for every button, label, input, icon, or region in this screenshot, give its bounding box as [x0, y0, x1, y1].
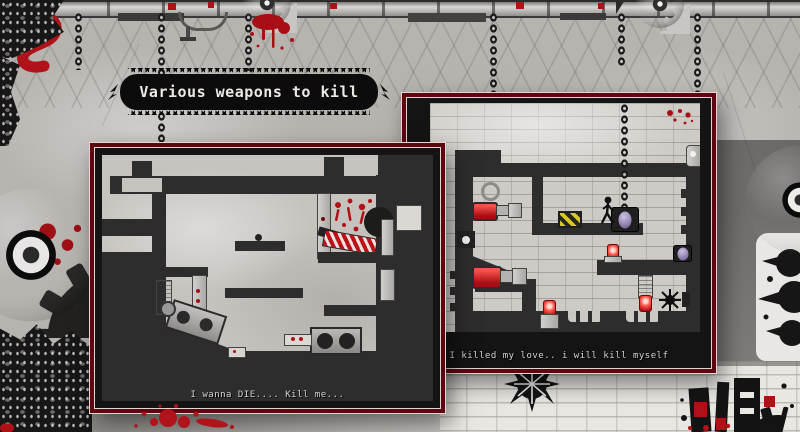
wall-tooth — [681, 225, 686, 234]
roller — [317, 333, 333, 349]
floor-notches — [568, 311, 602, 322]
syringe-head — [508, 203, 522, 218]
grunge-column — [0, 322, 92, 432]
banner: Various weapons to kill — [120, 68, 378, 116]
syringe-icon — [472, 202, 498, 221]
red-dot — [233, 350, 236, 353]
trigger-device — [284, 334, 312, 346]
rail-foot — [180, 37, 196, 41]
trigger-device — [228, 347, 246, 358]
shield-icon — [677, 247, 688, 260]
wall — [318, 252, 382, 263]
banner-spark-left-icon — [108, 84, 120, 100]
blood-splatter-icon — [238, 12, 308, 60]
roller — [198, 317, 214, 333]
platform — [225, 288, 303, 298]
pivot-hole — [462, 236, 470, 244]
chimney-wall — [324, 157, 344, 194]
red-paint-mark — [330, 3, 337, 9]
blood-splatter-icon — [120, 396, 250, 432]
rail-block — [118, 13, 184, 21]
wall-connector — [380, 269, 395, 301]
banner-spark-right-icon — [378, 84, 390, 100]
wall-notch — [122, 178, 162, 192]
wall-tooth — [450, 287, 455, 295]
syringe-icon — [472, 266, 502, 289]
wall — [102, 252, 154, 401]
red-dot — [196, 289, 200, 293]
blood-splatter-icon — [662, 107, 696, 131]
shield-device — [673, 245, 692, 262]
saw-blade-icon — [630, 0, 690, 34]
floor-notches — [626, 311, 660, 322]
shield-icon — [619, 211, 632, 228]
red-dot — [291, 337, 295, 341]
spiked-mine-icon — [658, 288, 682, 312]
game-screenshot-stage: Various weapons to kill — [0, 0, 800, 432]
red-paint-mark — [168, 3, 176, 10]
wall — [102, 219, 154, 236]
stickman-icon — [598, 196, 616, 224]
saw-blade-icon — [732, 132, 800, 268]
grunge-logo — [676, 362, 800, 432]
platform-knob — [255, 234, 262, 241]
roller — [175, 309, 191, 325]
crusher-machine — [310, 327, 362, 355]
red-dot — [299, 337, 303, 341]
ring-icon — [481, 182, 500, 201]
level-screenshot-left: I wanna DIE.... Kill me... — [90, 143, 445, 413]
red-paint-mark — [598, 3, 604, 9]
wall-connector — [381, 219, 394, 256]
machine-wheel — [160, 301, 176, 317]
rail-bracket — [616, 0, 625, 14]
wall-tooth — [681, 189, 686, 198]
banner-title: Various weapons to kill — [120, 74, 378, 110]
red-paint-mark — [0, 424, 14, 432]
level2-scene — [430, 103, 700, 332]
red-dot — [196, 299, 200, 303]
level1-scene — [102, 155, 433, 401]
syringe-head — [512, 268, 527, 285]
wall-box — [396, 205, 422, 231]
wall-tooth — [450, 303, 455, 311]
chain-icon — [620, 103, 630, 209]
wall-tooth — [681, 207, 686, 216]
rail-block — [560, 13, 606, 20]
logo-splatter-icon — [676, 362, 800, 432]
mine-bracket — [682, 292, 690, 307]
red-lamp-icon — [639, 295, 652, 312]
level2-caption: I killed my love.. i will kill myself — [406, 351, 712, 361]
wall — [132, 161, 152, 177]
bracket-hole — [690, 151, 696, 157]
hazard-block-icon — [558, 211, 582, 228]
chain-icon — [617, 12, 626, 66]
roller — [339, 333, 355, 349]
ceiling-wall — [455, 163, 700, 177]
wall-tooth — [450, 271, 455, 279]
wall — [324, 305, 376, 316]
lamp-base — [540, 314, 559, 329]
red-paint-mark — [516, 2, 524, 9]
rail-block — [408, 13, 486, 22]
platform — [235, 241, 285, 251]
red-paint-mark — [208, 2, 214, 8]
level-screenshot-right: I killed my love.. i will kill myself — [402, 93, 716, 373]
lamp-base — [604, 256, 622, 263]
